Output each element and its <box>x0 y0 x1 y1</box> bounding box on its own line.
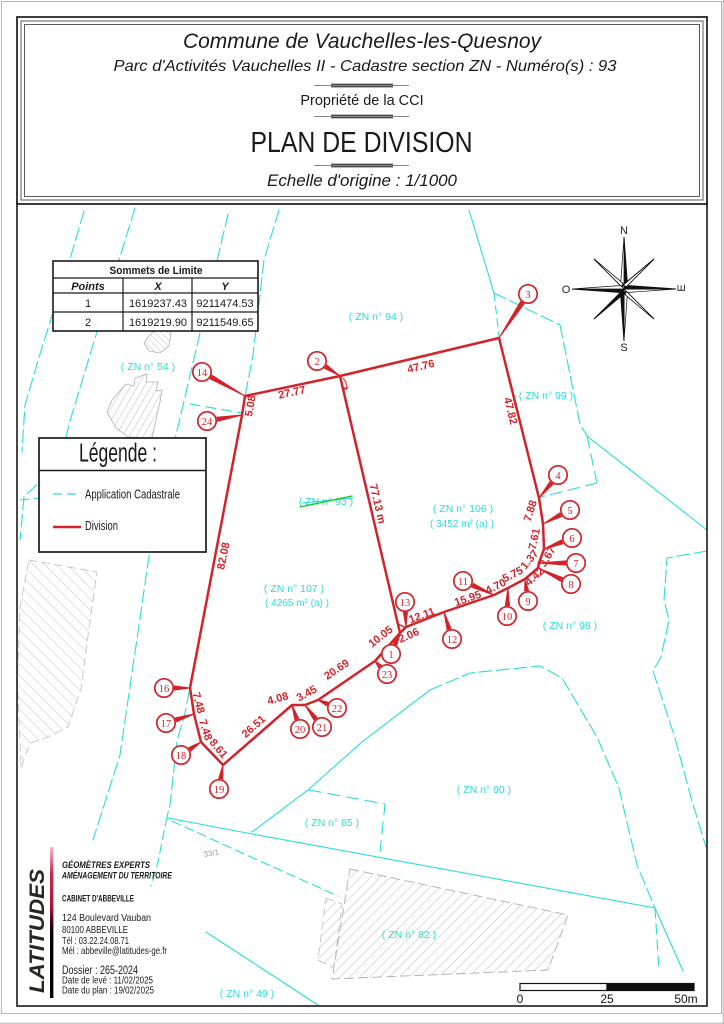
svg-text:Commune de Vauchelles-les-Ques: Commune de Vauchelles-les-Quesnoy <box>183 29 542 53</box>
svg-text:9211474.53: 9211474.53 <box>196 298 253 310</box>
svg-text:10: 10 <box>502 612 513 623</box>
svg-text:1619219.90: 1619219.90 <box>129 317 187 329</box>
svg-text:12: 12 <box>447 635 458 646</box>
svg-text:21: 21 <box>317 723 328 734</box>
svg-text:( ZN n° 106 ): ( ZN n° 106 ) <box>433 503 493 515</box>
svg-text:5: 5 <box>567 506 572 517</box>
svg-text:25: 25 <box>600 992 614 1006</box>
svg-text:LATITUDES: LATITUDES <box>25 868 49 993</box>
svg-text:124 Boulevard Vauban: 124 Boulevard Vauban <box>62 912 151 924</box>
svg-text:20: 20 <box>295 725 306 736</box>
svg-text:50m: 50m <box>674 992 697 1006</box>
svg-text:( ZN n° 90 ): ( ZN n° 90 ) <box>457 784 511 796</box>
svg-text:( ZN n° 107 ): ( ZN n° 107 ) <box>264 583 324 595</box>
svg-text:22: 22 <box>332 704 343 715</box>
svg-text:( 4265 m² (a) ): ( 4265 m² (a) ) <box>265 598 329 609</box>
svg-text:Division: Division <box>85 519 118 533</box>
svg-text:PLAN DE DIVISION: PLAN DE DIVISION <box>251 127 473 159</box>
svg-text:GÉOMÈTRES EXPERTS: GÉOMÈTRES EXPERTS <box>62 860 151 871</box>
svg-text:14: 14 <box>197 368 208 379</box>
svg-text:11: 11 <box>458 577 468 588</box>
svg-text:N: N <box>620 225 628 237</box>
svg-text:Parc d'Activités Vauchelles II: Parc d'Activités Vauchelles II - Cadastr… <box>114 58 617 75</box>
svg-text:Sommets de Limite: Sommets de Limite <box>110 265 203 277</box>
svg-text:16: 16 <box>159 684 170 695</box>
svg-text:17: 17 <box>161 719 172 730</box>
svg-text:0: 0 <box>517 992 524 1006</box>
svg-text:E: E <box>676 284 688 291</box>
svg-text:4: 4 <box>555 471 561 482</box>
svg-text:Mél : abbeville@latitudes-ge.f: Mél : abbeville@latitudes-ge.fr <box>62 945 167 957</box>
svg-text:Propriété de la CCI: Propriété de la CCI <box>300 93 423 109</box>
svg-text:2: 2 <box>314 357 319 368</box>
svg-text:9: 9 <box>525 597 530 608</box>
svg-text:X: X <box>153 281 162 293</box>
svg-text:CABINET D'ABBEVILLE: CABINET D'ABBEVILLE <box>62 894 134 905</box>
svg-text:1: 1 <box>388 650 393 661</box>
svg-text:7: 7 <box>573 559 578 570</box>
svg-text:( ZN n° 85 ): ( ZN n° 85 ) <box>305 817 359 829</box>
svg-text:23: 23 <box>382 670 393 681</box>
svg-text:3: 3 <box>525 290 530 301</box>
svg-text:Application Cadastrale: Application Cadastrale <box>85 488 180 502</box>
svg-text:( 3452 m² (a) ): ( 3452 m² (a) ) <box>430 519 494 530</box>
svg-text:Echelle d'origine : 1/1000: Echelle d'origine : 1/1000 <box>267 172 458 190</box>
svg-text:( ZN n° 54 ): ( ZN n° 54 ) <box>121 361 175 373</box>
svg-text:S: S <box>620 342 627 354</box>
svg-text:( ZN n° 99 ): ( ZN n° 99 ) <box>519 390 573 402</box>
svg-text:( ZN n° 94 ): ( ZN n° 94 ) <box>349 311 403 323</box>
svg-text:1: 1 <box>85 298 91 310</box>
svg-text:24: 24 <box>202 417 213 428</box>
svg-text:13: 13 <box>400 598 411 609</box>
svg-text:Légende :: Légende : <box>79 440 157 468</box>
svg-text:2: 2 <box>85 317 91 329</box>
svg-text:6: 6 <box>569 534 574 545</box>
svg-text:19: 19 <box>214 785 225 796</box>
svg-text:8: 8 <box>568 580 573 591</box>
svg-text:O: O <box>562 284 571 296</box>
svg-text:( ZN n° 98 ): ( ZN n° 98 ) <box>543 620 597 632</box>
svg-text:AMÉNAGEMENT DU TERRITOIRE: AMÉNAGEMENT DU TERRITOIRE <box>61 871 172 882</box>
svg-text:Date du plan : 19/02/2025: Date du plan : 19/02/2025 <box>62 986 154 997</box>
svg-text:( ZN n° 49 ): ( ZN n° 49 ) <box>220 988 274 1000</box>
svg-text:1619237.43: 1619237.43 <box>129 298 187 310</box>
svg-text:( ZN n° 82 ): ( ZN n° 82 ) <box>382 929 436 941</box>
svg-text:9211549.65: 9211549.65 <box>196 317 253 329</box>
svg-text:18: 18 <box>176 751 187 762</box>
svg-text:Points: Points <box>71 281 105 293</box>
